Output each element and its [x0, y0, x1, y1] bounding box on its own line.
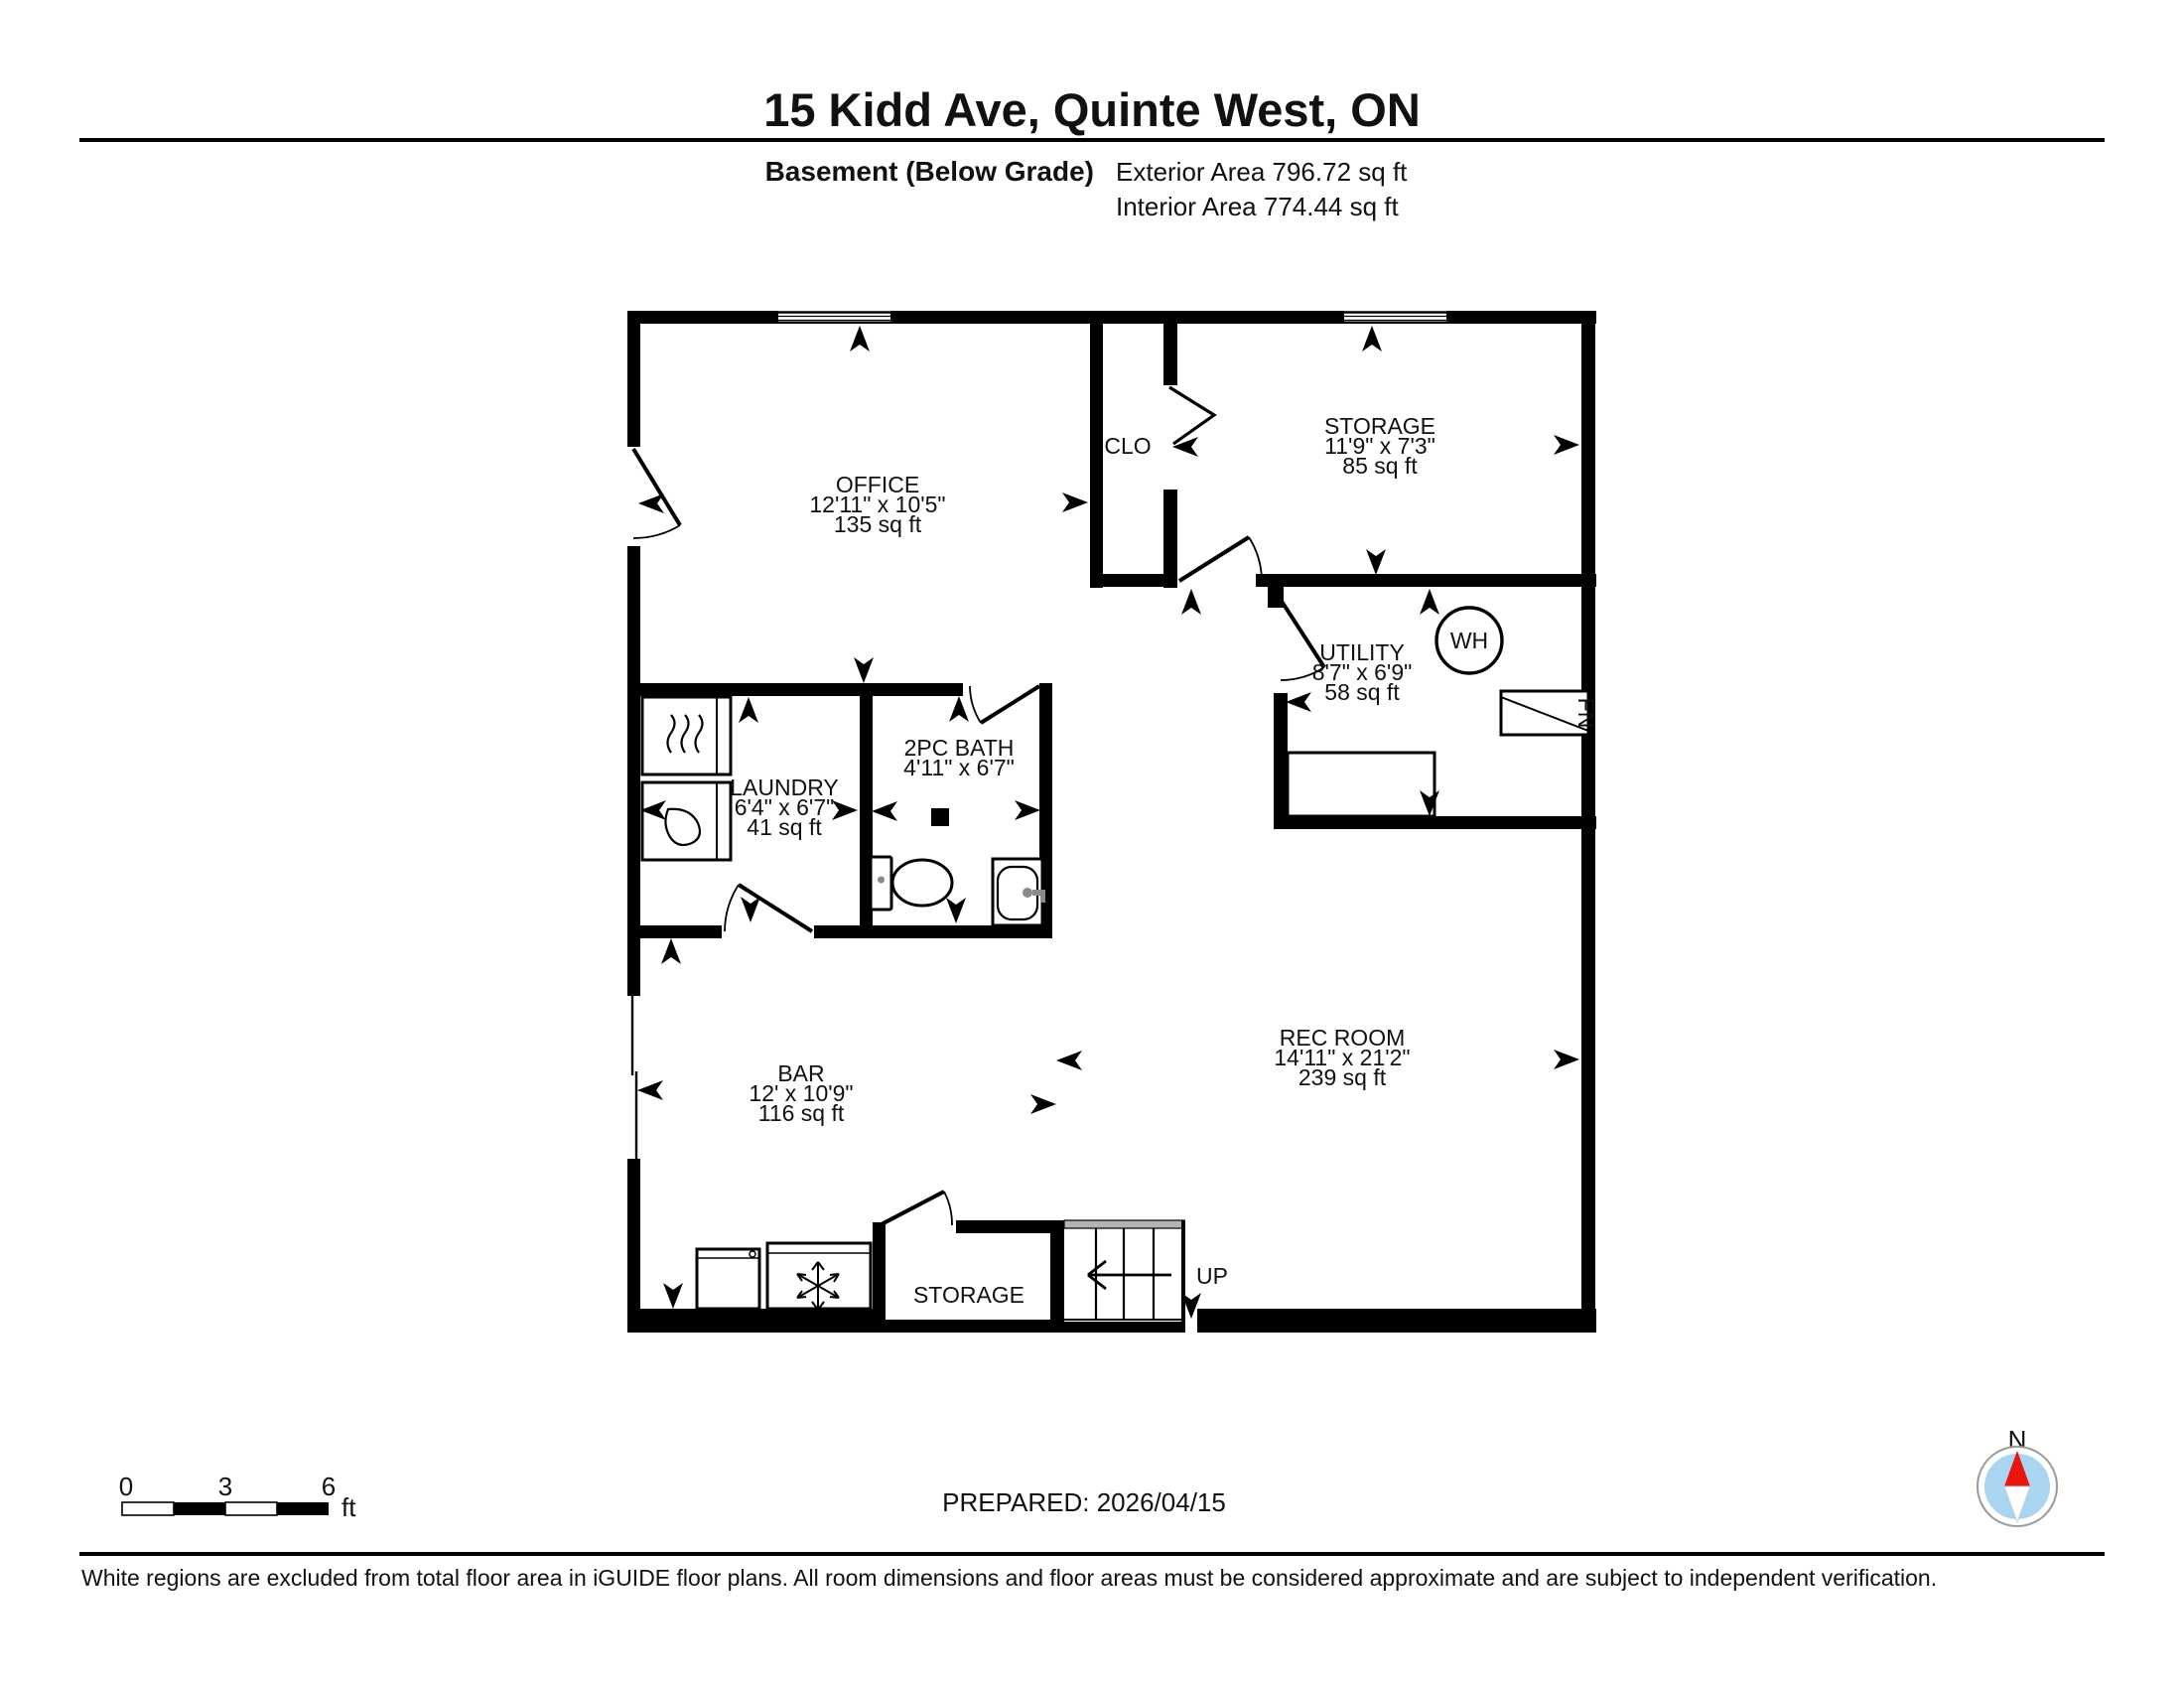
arrow-left-icon: [638, 493, 664, 513]
door-lower-storage: [880, 1192, 952, 1225]
door-closet-bifold: [1169, 387, 1214, 444]
fixtures: WH FN: [642, 608, 1599, 1322]
bath-dims: 4'11" x 6'7": [903, 755, 1015, 780]
furnace-label: FN: [1573, 698, 1599, 729]
storage-lower-name: STORAGE: [913, 1282, 1024, 1308]
footer-disclaimer: White regions are excluded from total fl…: [81, 1565, 1937, 1591]
arrow-up-icon: [1420, 589, 1439, 615]
arrow-down-icon: [1366, 549, 1386, 575]
footer-divider: [79, 1552, 2105, 1556]
toilet: [871, 857, 952, 910]
header-divider: [79, 138, 2105, 142]
arrow-up-icon: [850, 326, 870, 352]
footer: 0 3 6 ft PREPARED: 2026/04/15 N White re…: [79, 1425, 2105, 1591]
prepared-date: PREPARED: 2026/04/15: [942, 1487, 1226, 1517]
office-area: 135 sq ft: [834, 511, 922, 537]
exterior-area: Exterior Area 796.72 sq ft: [1116, 157, 1408, 187]
door-hall-to-utility-area: [1179, 537, 1262, 581]
label-bath: 2PC BATH 4'11" x 6'7": [903, 735, 1015, 780]
arrow-up-icon: [949, 696, 969, 722]
label-office: OFFICE 12'11" x 10'5" 135 sq ft: [809, 472, 945, 537]
arrow-right-icon: [1554, 435, 1579, 455]
stairs-up-label: UP: [1196, 1263, 1228, 1289]
north-compass-icon: N: [1978, 1425, 2057, 1526]
door-laundry: [725, 885, 812, 931]
arrow-left-icon: [1286, 692, 1311, 712]
interior-area: Interior Area 774.44 sq ft: [1116, 192, 1400, 221]
water-heater: WH: [1436, 608, 1502, 673]
arrow-left-icon: [1056, 1051, 1082, 1070]
stairs-direction-arrow-icon: [1088, 1261, 1171, 1289]
closet-name: CLO: [1104, 433, 1151, 459]
dryer: [642, 697, 731, 774]
arrow-up-icon: [1362, 326, 1382, 352]
arrow-left-icon: [637, 1080, 663, 1100]
arrow-left-icon: [872, 801, 897, 821]
laundry-tub: [697, 1249, 759, 1309]
arrow-right-icon: [832, 800, 858, 820]
arrow-up-icon: [739, 697, 758, 723]
utility-area: 58 sq ft: [1324, 679, 1400, 705]
storage-upper-area: 85 sq ft: [1342, 453, 1418, 479]
arrow-right-icon: [1030, 1094, 1056, 1114]
bath-drain-marker: [931, 808, 949, 826]
page-title: 15 Kidd Ave, Quinte West, ON: [763, 83, 1421, 136]
scale-bar: 0 3 6 ft: [119, 1472, 356, 1522]
arrow-down-icon: [663, 1283, 683, 1309]
stair-landing: [1064, 1220, 1184, 1228]
arrow-up-icon: [1181, 589, 1201, 615]
furnace: FN: [1501, 691, 1599, 735]
freezer: [767, 1243, 871, 1310]
label-bar: BAR 12' x 10'9" 116 sq ft: [749, 1060, 853, 1126]
arrow-up-icon: [661, 938, 681, 964]
label-utility: UTILITY 8'7" x 6'9" 58 sq ft: [1312, 639, 1413, 705]
door-office-exterior: [633, 449, 680, 538]
window-bar-left: [632, 996, 636, 1159]
scale-tick-0: 0: [119, 1472, 133, 1501]
laundry-area: 41 sq ft: [747, 814, 822, 840]
arrow-down-icon: [946, 898, 966, 923]
floorplan-canvas: 15 Kidd Ave, Quinte West, ON Basement (B…: [0, 0, 2184, 1688]
scale-unit: ft: [341, 1492, 356, 1522]
scale-tick-6: 6: [322, 1472, 336, 1501]
arrow-right-icon: [1062, 492, 1088, 512]
window-storage: [1344, 313, 1446, 323]
door-bath: [970, 686, 1039, 723]
label-storage-upper: STORAGE 11'9" x 7'3" 85 sq ft: [1324, 413, 1435, 479]
window-office: [778, 313, 890, 323]
label-rec-room: REC ROOM 14'11" x 21'2" 239 sq ft: [1274, 1025, 1410, 1090]
header: 15 Kidd Ave, Quinte West, ON Basement (B…: [79, 83, 2105, 221]
arrow-down-icon: [854, 657, 874, 683]
sink: [993, 859, 1045, 925]
washer: [642, 782, 731, 860]
room-labels: OFFICE 12'11" x 10'5" 135 sq ft CLO STOR…: [730, 413, 1435, 1308]
arrow-right-icon: [1015, 800, 1040, 820]
label-laundry: LAUNDRY 6'4" x 6'7" 41 sq ft: [730, 774, 839, 840]
floorplan-page: 15 Kidd Ave, Quinte West, ON Basement (B…: [0, 0, 2184, 1688]
bar-area: 116 sq ft: [758, 1100, 845, 1126]
stairs-up: [1064, 1220, 1185, 1322]
utility-platform: [1288, 753, 1434, 816]
rec-room-area: 239 sq ft: [1298, 1064, 1387, 1090]
arrow-right-icon: [1554, 1050, 1579, 1069]
water-heater-label: WH: [1450, 628, 1488, 653]
arrow-down-icon: [741, 897, 760, 922]
scale-tick-3: 3: [218, 1472, 232, 1501]
floor-label: Basement (Below Grade): [765, 156, 1094, 187]
